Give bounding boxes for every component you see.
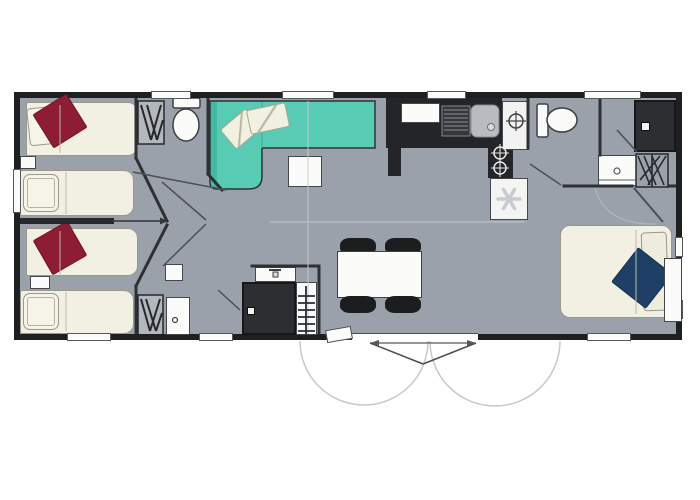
window-top-3 (428, 92, 465, 98)
entrance-swing-arcs (300, 341, 560, 406)
window-bottom-2 (200, 334, 232, 340)
floor-plan-canvas (0, 0, 700, 500)
bedroom1-pillow-bottom (23, 174, 59, 212)
wardrobe-bedroom2 (138, 295, 163, 334)
entrance-doors-layer (280, 334, 580, 418)
bedroom2-door-leaf (166, 297, 190, 335)
wardrobe-bedroom1 (138, 101, 164, 144)
bedroom2-pillow-bottom (23, 293, 59, 330)
wardrobe-bathroom (636, 154, 668, 187)
bathroom-washbasin (598, 155, 638, 186)
kitchen-side-unit (502, 101, 529, 150)
shower-head-icon (641, 122, 650, 131)
coffee-table (288, 156, 322, 187)
master-nightstand (664, 258, 682, 322)
partition-arrow-line (112, 218, 168, 225)
window-bottom-1 (68, 334, 110, 340)
shower-cabin-head-icon (247, 307, 255, 315)
dining-table (337, 251, 422, 298)
dining-chair-bottom-right (385, 296, 421, 313)
master-door-arc (595, 188, 656, 224)
floor-plan-outline (14, 92, 682, 340)
entrance-chord-line (370, 340, 476, 346)
hallway-cabinet (165, 264, 183, 281)
sofa-pillow-right (246, 102, 290, 135)
window-bottom-3 (588, 334, 630, 340)
toilet-rear (537, 104, 577, 137)
dining-chair-bottom-left (340, 296, 376, 313)
fridge (490, 178, 528, 220)
window-left (14, 170, 20, 212)
entrance-opening (352, 333, 478, 340)
bedroom1-nightstand (20, 156, 36, 169)
kitchen-column (388, 98, 401, 176)
showerroom-washbasin (255, 267, 296, 282)
window-top-4 (585, 92, 640, 98)
toilet-front (173, 98, 200, 141)
bedroom2-shelf (30, 276, 50, 289)
entrance-door-leaves (370, 343, 476, 364)
window-right-1 (676, 238, 682, 256)
window-top-1 (152, 92, 190, 98)
kitchen-cupboard (401, 103, 440, 123)
towel-radiator (296, 282, 317, 335)
window-top-2 (283, 92, 333, 98)
sofa-armrest-shade (211, 102, 217, 188)
